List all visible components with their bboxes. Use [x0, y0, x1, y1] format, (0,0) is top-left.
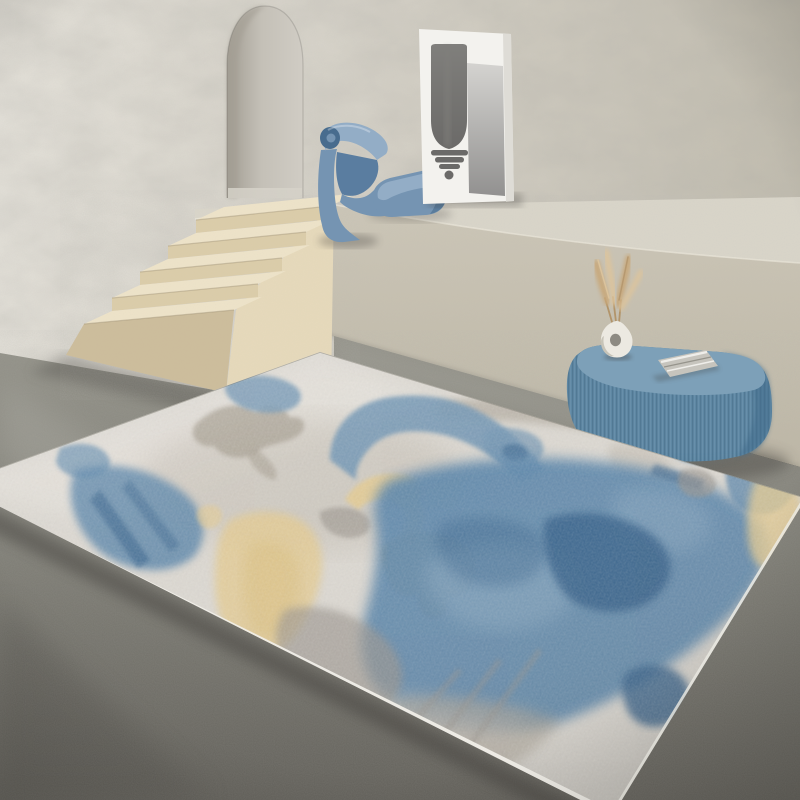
photo-vignette — [0, 0, 800, 800]
interior-photo — [0, 0, 800, 800]
room-scene — [0, 0, 800, 800]
